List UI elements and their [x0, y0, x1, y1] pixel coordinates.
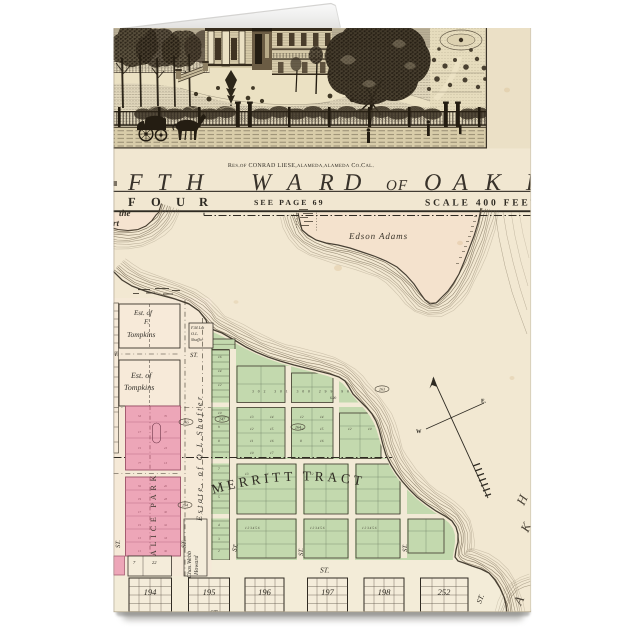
svg-text:16: 16 [218, 355, 222, 359]
svg-text:194: 194 [144, 587, 158, 597]
svg-text:195: 195 [203, 587, 216, 597]
svg-text:1 2 3 4 5 6: 1 2 3 4 5 6 [362, 526, 377, 530]
svg-text:55: 55 [138, 484, 142, 488]
svg-text:9: 9 [218, 425, 220, 429]
svg-text:28: 28 [164, 497, 168, 501]
svg-text:32: 32 [164, 523, 168, 527]
svg-text:12: 12 [310, 472, 314, 476]
svg-text:10: 10 [368, 427, 372, 431]
svg-text:1 2 3 4 5 6: 1 2 3 4 5 6 [310, 526, 325, 530]
svg-text:77: 77 [138, 461, 142, 465]
svg-text:54: 54 [138, 414, 142, 418]
svg-text:Chas.Webb: Chas.Webb [186, 551, 193, 578]
svg-text:34: 34 [164, 536, 168, 540]
svg-text:12: 12 [218, 383, 222, 387]
svg-text:the: the [119, 208, 131, 218]
svg-text:Estate. of O.L.Shafter: Estate. of O.L.Shafter [195, 394, 204, 522]
svg-text:R: R [318, 170, 334, 196]
svg-text:24: 24 [164, 446, 168, 450]
svg-text:13: 13 [250, 415, 254, 419]
svg-text:16: 16 [320, 439, 324, 443]
svg-text:D: D [343, 170, 361, 196]
svg-text:T: T [157, 170, 172, 196]
svg-text:T.: T. [114, 351, 119, 358]
svg-text:SEE PAGE 69: SEE PAGE 69 [254, 198, 325, 207]
svg-text:ST.: ST. [402, 544, 409, 552]
svg-text:1 2 3 4 5 6: 1 2 3 4 5 6 [245, 526, 260, 530]
svg-text:5: 5 [218, 495, 220, 499]
svg-text:6: 6 [218, 481, 220, 485]
svg-text:ST.: ST. [298, 548, 305, 556]
svg-text:19: 19 [138, 497, 142, 501]
svg-text:ST.: ST. [115, 540, 122, 548]
svg-text:14: 14 [218, 369, 222, 373]
svg-text:Est. of: Est. of [130, 371, 153, 380]
svg-text:15: 15 [138, 523, 142, 527]
svg-text:R: R [199, 195, 209, 209]
svg-text:ST.: ST. [181, 540, 188, 548]
svg-text:302 301 300 299 98: 302 301 300 299 98 [252, 390, 353, 394]
svg-text:47: 47 [164, 430, 168, 434]
svg-text:14: 14 [330, 472, 334, 476]
svg-text:11: 11 [250, 439, 253, 443]
svg-text:13: 13 [245, 472, 249, 476]
svg-text:U: U [176, 195, 185, 209]
svg-text:15: 15 [138, 446, 142, 450]
svg-text:36: 36 [164, 549, 168, 553]
svg-text:17: 17 [138, 510, 142, 514]
svg-text:Est. of: Est. of [133, 309, 153, 317]
svg-text:198: 198 [378, 587, 392, 597]
svg-text:ST.: ST. [190, 352, 198, 359]
svg-text:247: 247 [219, 417, 226, 422]
svg-text:ALICE PARK: ALICE PARK [149, 472, 158, 556]
svg-text:H: H [185, 170, 205, 196]
svg-text:30: 30 [164, 510, 168, 514]
svg-text:E.: E. [481, 399, 487, 405]
svg-text:12: 12 [300, 415, 304, 419]
svg-text:12: 12 [250, 427, 254, 431]
svg-text:11: 11 [138, 549, 141, 553]
svg-text:W: W [251, 170, 273, 196]
svg-text:Tompkins: Tompkins [127, 330, 156, 339]
svg-text:4: 4 [218, 523, 220, 527]
svg-text:F.: F. [143, 318, 149, 326]
svg-text:K: K [484, 170, 503, 196]
svg-text:2: 2 [218, 549, 220, 553]
svg-text:F: F [128, 195, 136, 209]
svg-text:A: A [285, 170, 302, 196]
svg-text:14: 14 [270, 415, 274, 419]
svg-text:196: 196 [258, 587, 272, 597]
svg-text:17: 17 [270, 451, 274, 455]
svg-text:ST.: ST. [320, 566, 329, 575]
svg-text:15: 15 [270, 427, 274, 431]
svg-text:14: 14 [164, 461, 168, 465]
svg-text:10: 10 [218, 411, 222, 415]
svg-text:8: 8 [300, 439, 302, 443]
svg-text:F.M.Lot: F.M.Lot [190, 325, 205, 330]
svg-text:16: 16 [270, 439, 274, 443]
svg-text:Shaffer: Shaffer [191, 337, 203, 342]
svg-text:263: 263 [379, 387, 385, 392]
svg-text:A: A [451, 170, 468, 196]
svg-text:O: O [424, 170, 441, 196]
svg-text:10: 10 [300, 427, 304, 431]
svg-text:Tompkins: Tompkins [124, 383, 154, 392]
svg-text:10: 10 [250, 451, 254, 455]
svg-text:265: 265 [183, 420, 189, 425]
svg-text:SCALE 400 FEET: SCALE 400 FEET [425, 199, 540, 209]
svg-text:22: 22 [152, 560, 157, 565]
svg-text:254: 254 [182, 503, 188, 508]
svg-text:W: W [416, 429, 422, 435]
svg-text:14: 14 [265, 472, 269, 476]
svg-text:12: 12 [348, 427, 352, 431]
svg-text:O.L.: O.L. [191, 331, 198, 336]
svg-text:O: O [151, 195, 161, 209]
svg-text:252: 252 [438, 587, 452, 597]
svg-text:76: 76 [164, 414, 168, 418]
svg-text:13: 13 [138, 536, 142, 540]
svg-text:6.20: 6.20 [330, 396, 336, 400]
svg-text:17: 17 [138, 430, 142, 434]
svg-text:Howard: Howard [193, 555, 200, 576]
svg-text:RES.OF CONRAD LIESE,ALAMEDA,AL: RES.OF CONRAD LIESE,ALAMEDA,ALAMEDA CO.C… [228, 163, 374, 169]
svg-text:Edson Adams: Edson Adams [348, 231, 408, 241]
svg-text:26: 26 [164, 484, 168, 488]
svg-text:14: 14 [320, 415, 324, 419]
svg-text:8: 8 [218, 439, 220, 443]
svg-text:15: 15 [320, 427, 324, 431]
svg-text:3: 3 [218, 537, 220, 541]
svg-text:7: 7 [218, 467, 220, 471]
svg-text:F: F [127, 170, 143, 196]
svg-text:197: 197 [321, 587, 335, 597]
